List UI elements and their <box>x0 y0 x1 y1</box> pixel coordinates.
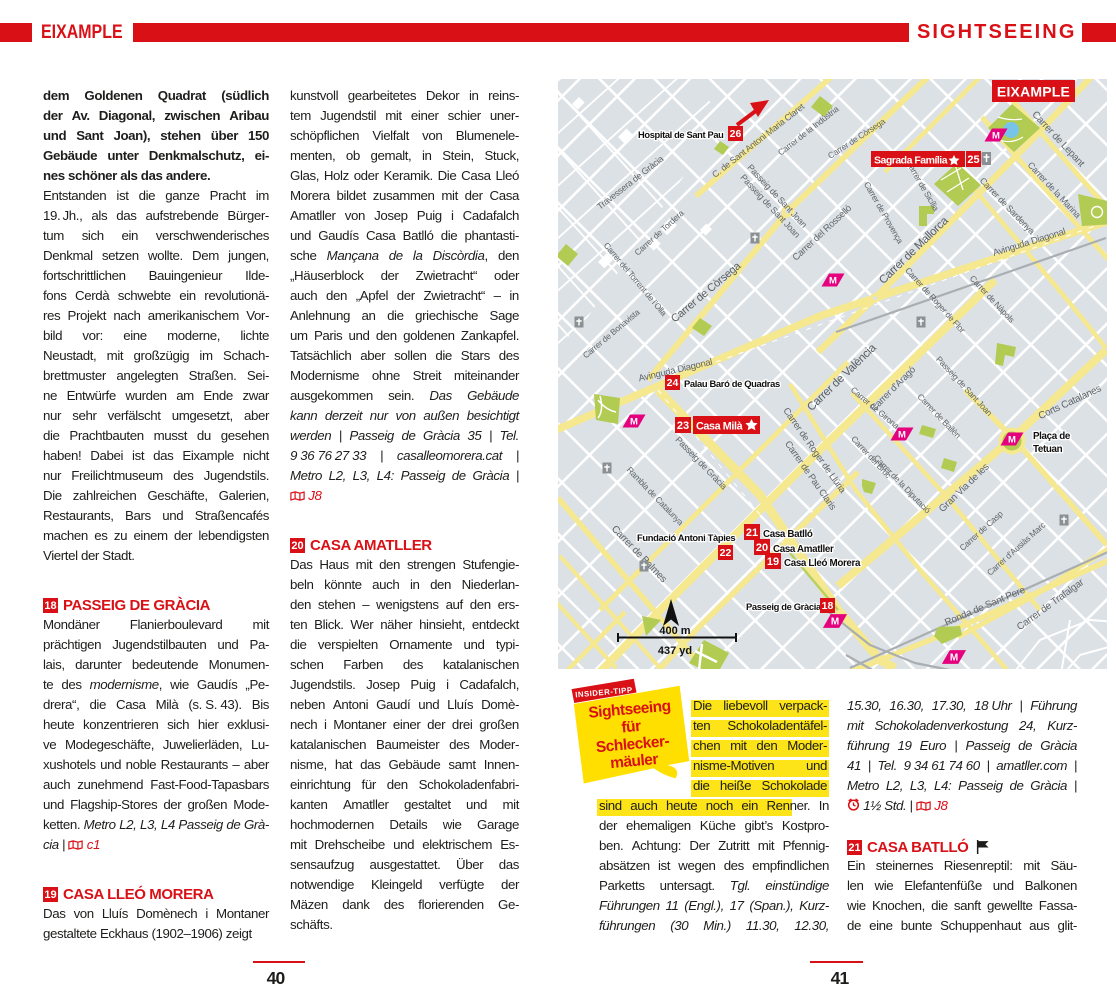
svg-text:Casa Lleó Morera: Casa Lleó Morera <box>784 558 861 569</box>
svg-text:Casa Amatller: Casa Amatller <box>773 544 834 555</box>
svg-text:M: M <box>992 130 1000 141</box>
svg-text:21: 21 <box>746 527 758 539</box>
svg-text:Casa Milà: Casa Milà <box>696 421 744 433</box>
svg-text:20: 20 <box>756 542 768 554</box>
svg-text:Fundació Antoni Tàpies: Fundació Antoni Tàpies <box>637 532 735 543</box>
svg-text:M: M <box>831 617 839 628</box>
svg-text:19: 19 <box>767 556 779 568</box>
svg-text:Tetuan: Tetuan <box>1033 444 1063 455</box>
svg-text:M: M <box>630 416 638 427</box>
svg-text:M: M <box>1008 434 1016 445</box>
svg-text:M: M <box>950 653 958 664</box>
svg-text:24: 24 <box>667 377 679 389</box>
svg-text:M: M <box>829 275 837 286</box>
svg-text:EIXAMPLE: EIXAMPLE <box>997 84 1070 100</box>
svg-text:mäuler: mäuler <box>609 751 659 772</box>
svg-text:Casa Batlló: Casa Batlló <box>763 529 813 540</box>
svg-text:23: 23 <box>677 420 689 432</box>
svg-text:25: 25 <box>967 154 979 166</box>
svg-text:Palau Baró de Quadras: Palau Baró de Quadras <box>684 378 780 389</box>
svg-text:M: M <box>898 429 906 440</box>
svg-text:Plaça de: Plaça de <box>1033 431 1071 442</box>
svg-text:Sagrada Família: Sagrada Família <box>874 155 948 167</box>
svg-text:18: 18 <box>822 600 834 612</box>
svg-text:437 yd: 437 yd <box>658 645 692 657</box>
svg-text:für: für <box>621 718 642 737</box>
svg-text:Hospital de Sant Pau: Hospital de Sant Pau <box>638 130 724 140</box>
svg-text:Passeig de Gràcia: Passeig de Gràcia <box>746 601 822 612</box>
svg-text:400 m: 400 m <box>659 625 690 637</box>
svg-text:26: 26 <box>730 128 742 140</box>
svg-text:22: 22 <box>720 547 732 559</box>
